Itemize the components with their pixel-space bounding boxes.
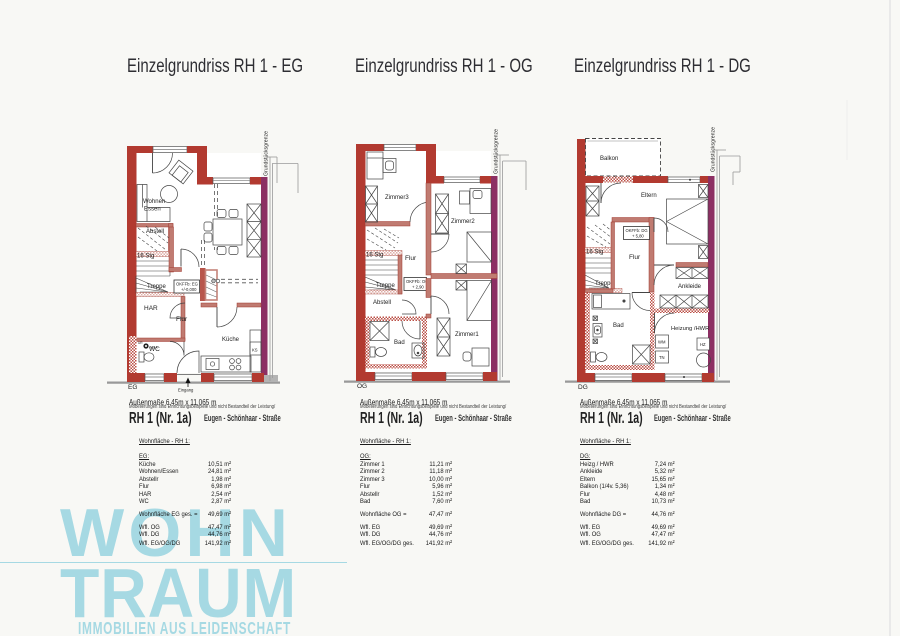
svg-text:EG: EG [128, 384, 137, 391]
svg-text:Bad: Bad [613, 323, 624, 329]
svg-text:Wohnen: Wohnen [143, 199, 165, 205]
svg-text:16 Stg: 16 Stg [366, 253, 383, 259]
svg-text:HZ: HZ [700, 342, 706, 347]
svg-text:OKFFb: EG: OKFFb: EG [176, 282, 198, 287]
svg-text:MSA: MSA [150, 346, 158, 350]
svg-text:16 Stg: 16 Stg [137, 254, 154, 260]
svg-text:Treppe: Treppe [376, 283, 395, 289]
svg-text:+/-0,000: +/-0,000 [181, 287, 197, 292]
svg-text:DG: DG [578, 384, 588, 391]
svg-text:16 Stg: 16 Stg [586, 250, 603, 256]
svg-text:KS: KS [252, 348, 258, 353]
svg-text:Flur: Flur [176, 316, 188, 323]
svg-text:OKFFb: DG: OKFFb: DG [626, 228, 648, 233]
svg-text:+ 5,80: + 5,80 [632, 234, 644, 239]
svg-text:Heizung /HWR: Heizung /HWR [671, 326, 709, 332]
svg-text:Bad: Bad [394, 340, 405, 346]
svg-text:UR: UR [138, 341, 143, 345]
svg-text:Grundstücksgrenze: Grundstücksgrenze [711, 127, 717, 172]
svg-text:Zimmer1: Zimmer1 [455, 332, 479, 338]
svg-text:Flur: Flur [405, 255, 417, 262]
svg-text:OG: OG [357, 383, 367, 390]
svg-text:Flur: Flur [629, 254, 641, 261]
svg-text:WM: WM [658, 340, 666, 345]
svg-text:Grundstücksgrenze: Grundstücksgrenze [264, 131, 270, 176]
svg-text:TN: TN [659, 355, 665, 360]
svg-text:Eltern: Eltern [641, 193, 657, 199]
svg-text:Zimmer3: Zimmer3 [385, 195, 409, 201]
svg-text:Grundstücksgrenze: Grundstücksgrenze [494, 129, 500, 174]
svg-text:Treppe: Treppe [147, 284, 166, 290]
svg-text:Ankleide: Ankleide [678, 284, 702, 290]
svg-text:+ 2,90: + 2,90 [412, 285, 424, 290]
svg-text:Balkon: Balkon [600, 156, 618, 162]
svg-text:OKFFb: OG: OKFFb: OG [406, 279, 428, 284]
svg-text:HAR: HAR [144, 305, 158, 312]
svg-text:Zimmer2: Zimmer2 [451, 219, 475, 225]
svg-text:Abstell: Abstell [146, 229, 164, 235]
svg-text:Küche: Küche [222, 337, 240, 343]
svg-text:Abstell: Abstell [373, 300, 391, 306]
svg-text:Eingang: Eingang [178, 388, 194, 393]
